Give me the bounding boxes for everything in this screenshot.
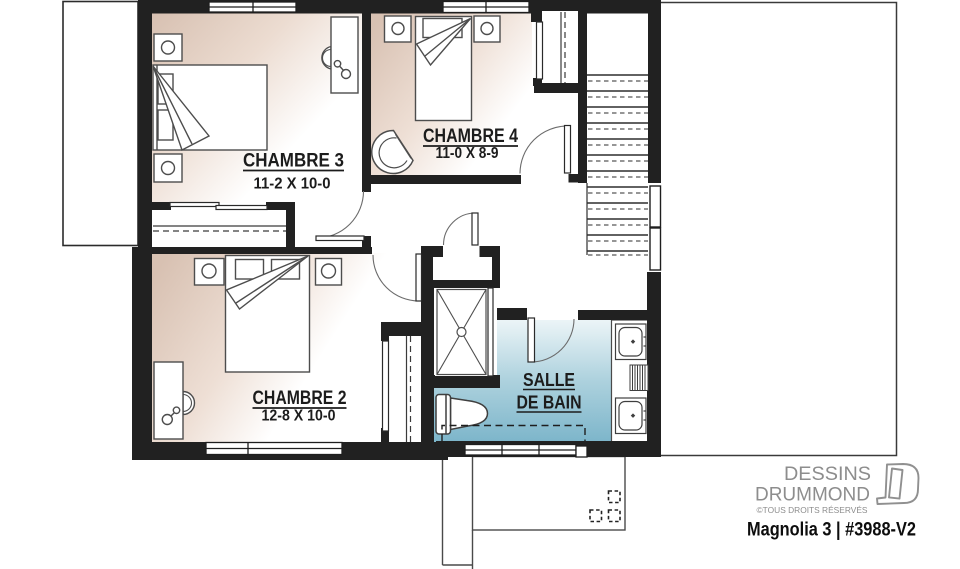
svg-text:SALLE: SALLE (523, 370, 575, 390)
svg-text:DESSINS: DESSINS (784, 464, 871, 485)
svg-text:11-2 X 10-0: 11-2 X 10-0 (254, 176, 331, 193)
svg-text:DRUMMOND: DRUMMOND (755, 485, 870, 506)
svg-text:Magnolia 3 | #3988-V2: Magnolia 3 | #3988-V2 (747, 519, 916, 541)
svg-text:CHAMBRE 2: CHAMBRE 2 (253, 388, 347, 409)
svg-text:CHAMBRE 3: CHAMBRE 3 (243, 151, 344, 172)
svg-text:11-0 X 8-9: 11-0 X 8-9 (436, 145, 499, 162)
svg-text:©TOUS DROITS RÉSERVÉS: ©TOUS DROITS RÉSERVÉS (757, 505, 868, 515)
svg-text:DE BAIN: DE BAIN (517, 393, 582, 413)
svg-text:12-8 X 10-0: 12-8 X 10-0 (262, 408, 336, 425)
svg-text:CHAMBRE 4: CHAMBRE 4 (423, 126, 518, 147)
